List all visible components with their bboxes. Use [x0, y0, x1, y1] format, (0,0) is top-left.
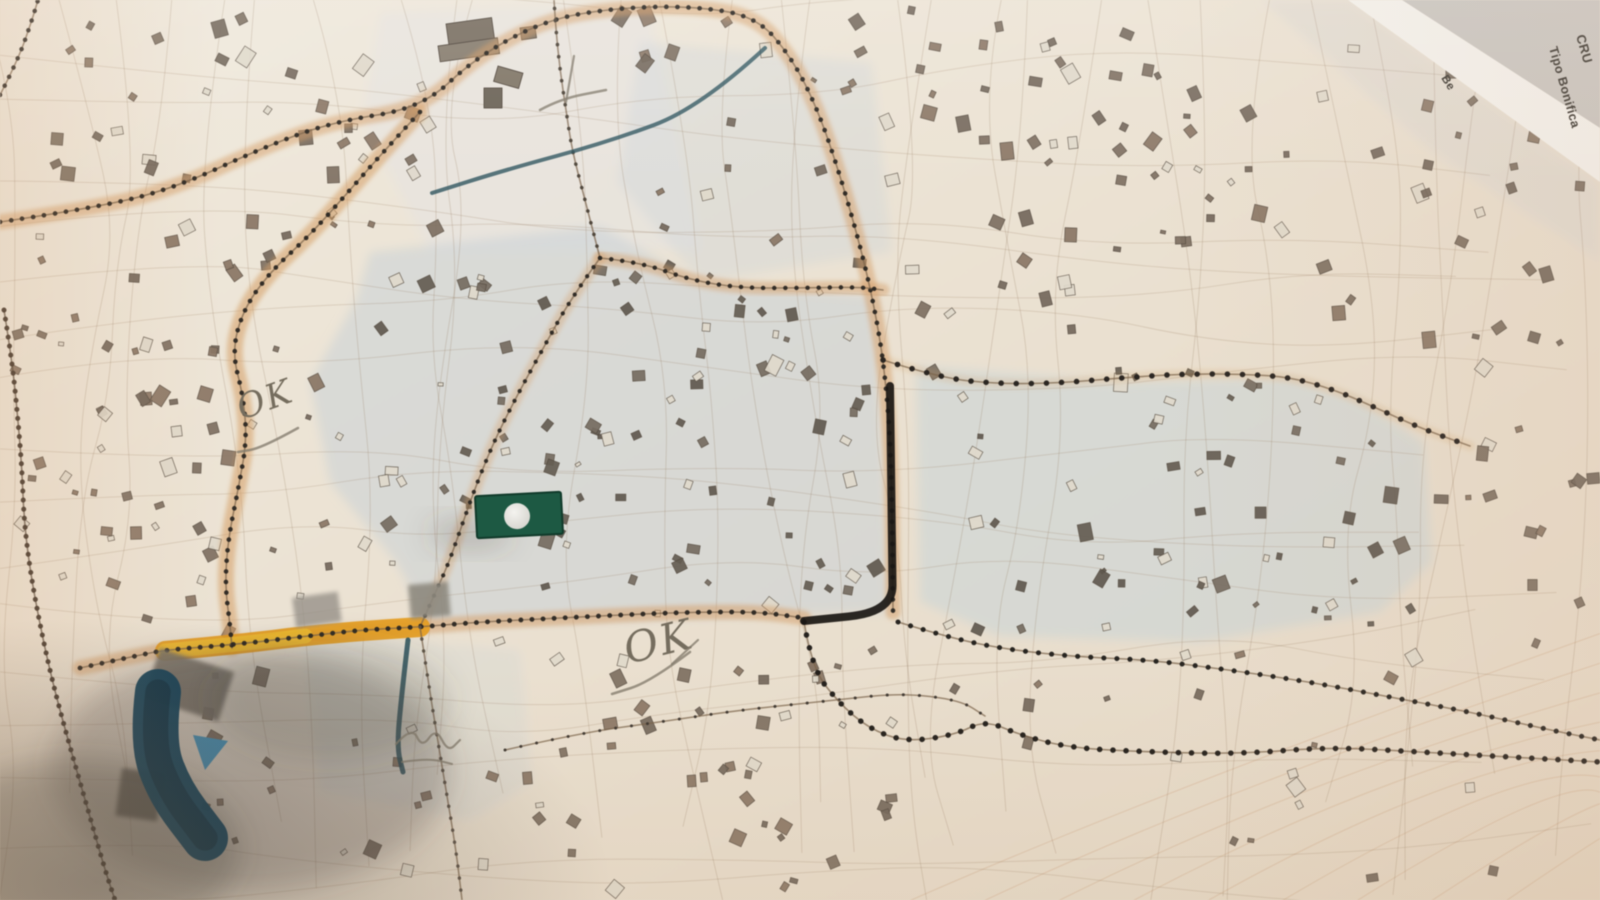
- cadastral-map: OK OK CRU Tipo Bonifica Be: [0, 0, 1600, 900]
- map-photo: OK OK CRU Tipo Bonifica Be: [0, 0, 1600, 900]
- green-pin-marker: [475, 492, 563, 538]
